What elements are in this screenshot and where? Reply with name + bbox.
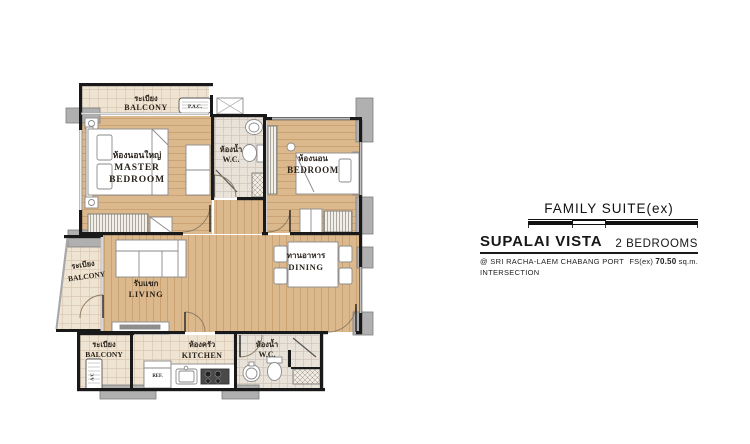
scale-bar-segments: [528, 221, 698, 225]
bedroom-label: BEDROOM: [287, 165, 339, 175]
wc-bottom-shelf-wall: [291, 367, 322, 369]
wc-bottom-toilet: [267, 357, 282, 381]
project-name: SUPALAI VISTA: [480, 233, 602, 250]
location-line1: @ SRI RACHA-LAEM CHABANG PORT: [480, 257, 624, 268]
ac-label: A/C: [90, 373, 95, 381]
bedroom-top-window: [272, 118, 350, 120]
wc-top-label: W.C.: [222, 155, 239, 164]
master-wardrobe: [88, 214, 148, 233]
area-value: 70.50: [655, 257, 676, 266]
wc-top-label-th: ห้องน้ำ: [220, 143, 242, 154]
project-name-row: SUPALAI VISTA 2 BEDROOMS: [480, 233, 698, 254]
balcony-bottom-label-th: ระเบียง: [92, 340, 116, 349]
dining-label: DINING: [288, 262, 323, 272]
balcony-top-label: BALCONY: [124, 103, 168, 112]
pac-label: P.A.C.: [188, 104, 203, 110]
master-bedroom-label-1: MASTER: [114, 163, 159, 173]
master-bedroom-label-2: BEDROOM: [109, 175, 165, 185]
scale-tick: [528, 225, 529, 228]
wc-top-basin: [246, 120, 263, 135]
screenshot-canvas: ระเบียง BALCONY ห้องนอนใหญ่ MASTER BEDRO…: [0, 0, 750, 444]
scale-bar-line: [528, 219, 698, 220]
area-prefix: FS(ex): [629, 257, 653, 266]
wc-bottom-label: W.C.: [258, 350, 275, 359]
living-label: LIVING: [129, 289, 164, 299]
scale-bar-segment: [606, 221, 698, 225]
balcony-top-label-th: ระเบียง: [134, 94, 158, 103]
location-line2: INTERSECTION: [480, 268, 624, 279]
unit-type-title: FAMILY SUITE(ex): [480, 201, 698, 216]
floor-plan: ระเบียง BALCONY ห้องนอนใหญ่ MASTER BEDRO…: [50, 75, 400, 420]
stove: [201, 369, 229, 384]
scale-tick: [572, 225, 573, 228]
bedroom-label-th: ห้องนอน: [298, 153, 328, 163]
meta-row: @ SRI RACHA-LAEM CHABANG PORT INTERSECTI…: [480, 257, 698, 278]
scale-bar-segment: [572, 220, 606, 225]
dining-cabinet: [324, 211, 352, 232]
location-text: @ SRI RACHA-LAEM CHABANG PORT INTERSECTI…: [480, 257, 624, 278]
dining-right-window: [360, 267, 362, 313]
dining-label-th: ทานอาหาร: [287, 251, 326, 260]
dining-sideboard: [300, 209, 322, 233]
living-sofa: [116, 240, 186, 277]
balcony-bottom-label: BALCONY: [85, 350, 123, 359]
wc-bottom-shelf: [293, 369, 320, 384]
bedrooms-label: 2 BEDROOMS: [615, 238, 698, 250]
wc-top-toilet: [243, 145, 265, 163]
title-block: FAMILY SUITE(ex) SUPALAI VISTA 2 BEDROOM…: [480, 201, 698, 278]
scale-tick: [605, 225, 606, 228]
scale-bar: [528, 219, 698, 228]
kitchen-label-th: ห้องครัว: [189, 340, 215, 349]
living-label-th: รับแขก: [134, 279, 159, 288]
scale-tick: [697, 225, 698, 228]
bedroom-wardrobe: [268, 126, 277, 194]
column: [356, 197, 373, 234]
scale-bar-segment: [528, 221, 572, 225]
master-dresser: [186, 145, 210, 195]
balcony-left-floor: [58, 238, 101, 331]
area-unit: sq.m.: [679, 257, 698, 266]
area-text: FS(ex) 70.50 sq.m.: [629, 257, 698, 278]
master-bedroom-label-th: ห้องนอนใหญ่: [113, 150, 162, 161]
kitchen-counter: [171, 364, 236, 389]
wc-bottom-label-th: ห้องน้ำ: [256, 338, 278, 349]
kitchen-label: KITCHEN: [182, 351, 223, 360]
master-cabinet: [150, 217, 172, 233]
bedroom-right-window: [360, 142, 362, 195]
window-box: [217, 98, 243, 114]
hall-floor: [214, 200, 264, 234]
ref-label: REF.: [152, 374, 162, 379]
